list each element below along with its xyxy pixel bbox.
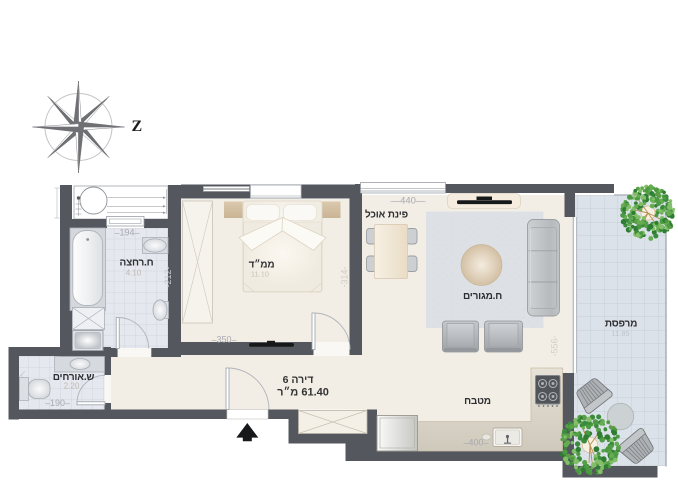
svg-text:–190–: –190– (45, 398, 70, 408)
svg-text:ח.רחצה: ח.רחצה (120, 258, 154, 269)
svg-text:-314-: -314- (340, 266, 350, 287)
svg-text:מטבח: מטבח (464, 396, 491, 407)
svg-text:דירה 6: דירה 6 (283, 374, 314, 386)
svg-text:ח.מגורים: ח.מגורים (463, 291, 502, 302)
svg-text:-212-: -212- (163, 266, 173, 287)
svg-text:–400–: –400– (463, 438, 488, 448)
svg-text:61.40 מ״ר: 61.40 מ״ר (277, 386, 329, 399)
svg-text:Z: Z (132, 118, 143, 135)
svg-text:-556-: -556- (550, 335, 560, 356)
svg-text:11.85: 11.85 (611, 329, 629, 338)
svg-text:11.10: 11.10 (251, 270, 269, 279)
svg-text:2.20: 2.20 (64, 382, 80, 391)
svg-text:–194–: –194– (114, 228, 139, 238)
svg-text:–350–: –350– (211, 335, 236, 345)
svg-text:מרפסת: מרפסת (605, 319, 637, 330)
svg-text:—440—: —440— (391, 196, 426, 207)
svg-text:4.10: 4.10 (126, 269, 142, 278)
svg-text:פינת אוכל: פינת אוכל (365, 209, 408, 221)
